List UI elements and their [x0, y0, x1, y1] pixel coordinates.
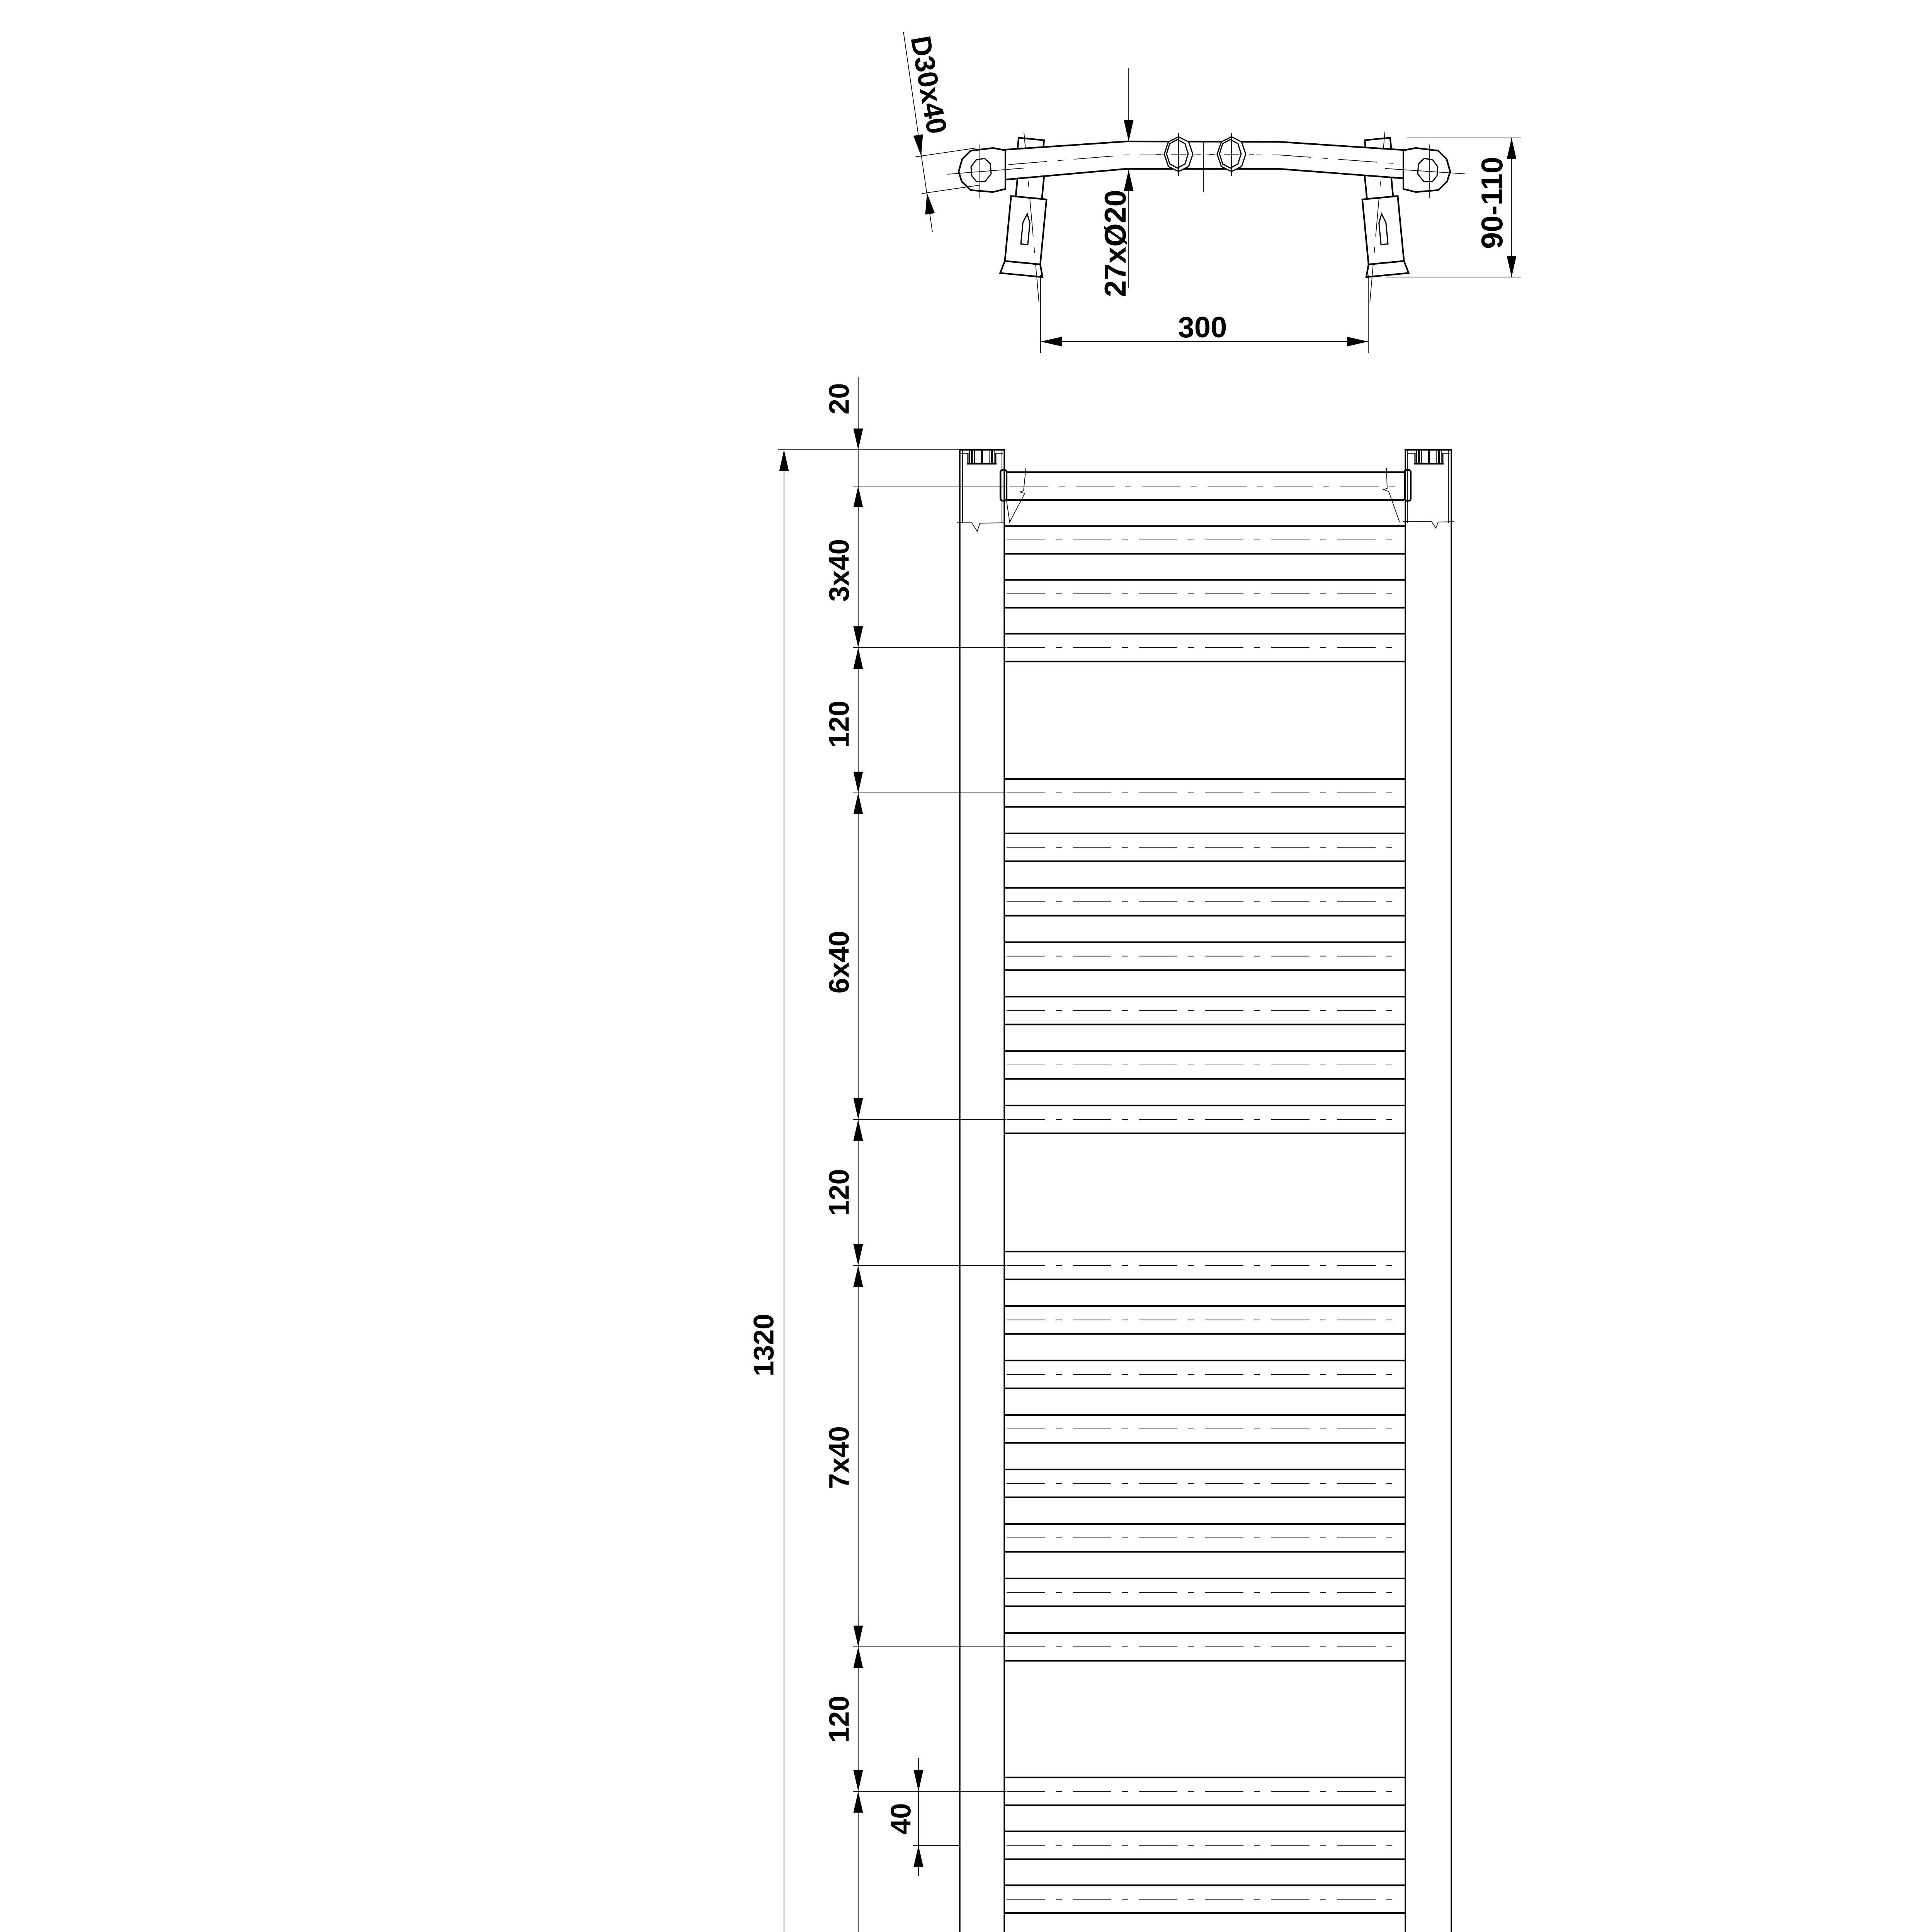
svg-text:27xØ20: 27xØ20 — [1098, 190, 1132, 297]
svg-text:300: 300 — [1178, 311, 1227, 344]
svg-text:120: 120 — [824, 1169, 855, 1216]
svg-text:90-110: 90-110 — [1475, 157, 1509, 249]
svg-text:120: 120 — [824, 1696, 855, 1743]
svg-text:6x40: 6x40 — [824, 931, 855, 993]
svg-text:20: 20 — [824, 383, 855, 414]
svg-text:40: 40 — [886, 1803, 917, 1834]
svg-text:3x40: 3x40 — [824, 539, 855, 602]
svg-text:1320: 1320 — [748, 1314, 780, 1376]
svg-text:7x40: 7x40 — [824, 1426, 855, 1489]
svg-text:120: 120 — [824, 701, 855, 748]
